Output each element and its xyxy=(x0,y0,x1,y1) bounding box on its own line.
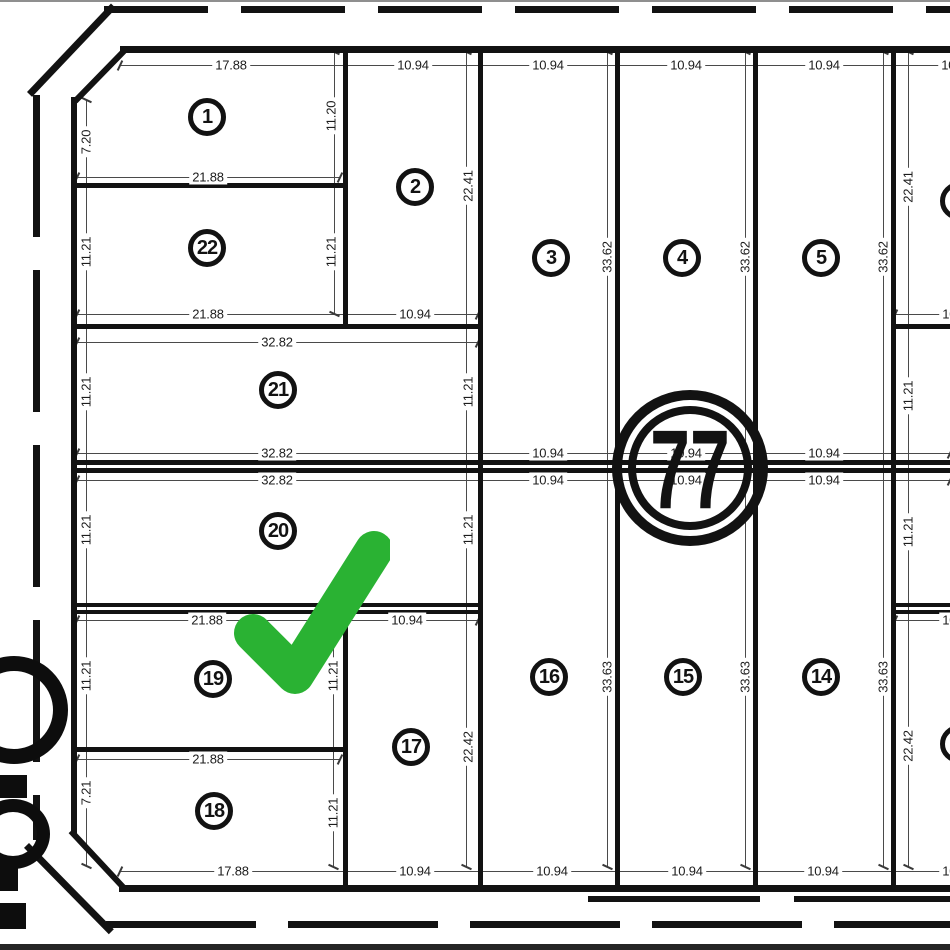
lot-number-circle[interactable]: 15 xyxy=(664,658,702,696)
street-edge-bottom-right xyxy=(588,896,950,902)
lot-number-circle[interactable]: 3 xyxy=(532,239,570,277)
dimension-label: 10.94 xyxy=(805,473,843,488)
dimension-label: 10.94 xyxy=(804,864,842,879)
lot-number-circle[interactable]: 5 xyxy=(802,239,840,277)
dimension-label: 11.21 xyxy=(79,512,94,549)
top-hairline xyxy=(0,0,950,2)
lot-number-circle[interactable]: 16 xyxy=(530,658,568,696)
lot-line-center-north xyxy=(72,460,950,465)
dimension-label: 22.42 xyxy=(461,728,476,766)
lot-number-circle-partial xyxy=(940,725,950,763)
dimension-label: 11.21 xyxy=(461,512,476,549)
block-number-seal: 77 xyxy=(610,388,770,548)
dimension-label: 10.94 xyxy=(529,58,567,73)
street-name-letter-fragment-o xyxy=(0,656,68,764)
dimension-label: 10.94 xyxy=(396,307,434,322)
dimension-label: 7.21 xyxy=(79,778,94,809)
dimension-label: 10.94 xyxy=(667,58,705,73)
dimension-label: 10.94 xyxy=(529,473,567,488)
dimension-label: 10.94 xyxy=(668,864,706,879)
dimension-label: 33.63 xyxy=(600,658,615,696)
dimension-label: 11.21 xyxy=(901,378,916,415)
dimension-label: 10.94 xyxy=(938,58,950,73)
dimension-label: 10.94 xyxy=(388,613,426,628)
dimension-label: 17.88 xyxy=(214,864,252,879)
dimension-label: 11.21 xyxy=(79,374,94,411)
lot-line xyxy=(891,603,950,607)
dimension-label: 22.42 xyxy=(901,727,916,765)
dimension-label: 33.62 xyxy=(876,238,891,276)
dimension-label: 33.62 xyxy=(600,238,615,276)
dimension-label: 11.21 xyxy=(326,795,341,832)
dimension-label: 10.94 xyxy=(529,446,567,461)
lot-line xyxy=(891,324,950,329)
dimension-label: 11.20 xyxy=(324,98,339,135)
lot-number-circle[interactable]: 21 xyxy=(259,371,297,409)
lot-number-circle[interactable]: 17 xyxy=(392,728,430,766)
block-chamfer-top-left xyxy=(73,46,129,103)
block-chamfer-bottom-left xyxy=(69,829,127,891)
lot-number-circle[interactable]: 14 xyxy=(802,658,840,696)
dimension-label: 10.94 xyxy=(394,58,432,73)
dimension-label: 33.63 xyxy=(876,658,891,696)
street-centerline-bottom xyxy=(106,921,950,928)
block-boundary-bottom xyxy=(119,885,950,892)
lot-line xyxy=(72,324,482,329)
block-boundary-left xyxy=(71,97,77,834)
block-number-text: 77 xyxy=(650,407,730,532)
plat-drawing-page: { "drawing": { "block_label": "77", "lot… xyxy=(0,0,950,950)
street-name-letter-fragment xyxy=(0,775,27,798)
dimension-label: 32.82 xyxy=(258,335,296,350)
dimension-label: 7.20 xyxy=(79,127,94,158)
street-name-letter-fragment xyxy=(0,903,26,929)
dimension-label: 11.21 xyxy=(79,234,94,271)
dimension-label: 10.94 xyxy=(805,58,843,73)
dimension-label: 33.63 xyxy=(738,658,753,696)
street-line-top-left-diagonal xyxy=(27,4,116,97)
lot-number-circle[interactable]: 1 xyxy=(188,98,226,136)
checkmark-annotation xyxy=(225,525,390,700)
dimension-label: 11.21 xyxy=(324,234,339,271)
lot-number-circle[interactable]: 22 xyxy=(188,229,226,267)
street-centerline-top xyxy=(104,6,950,13)
lot-line xyxy=(343,48,348,328)
dimension-label: 21.88 xyxy=(188,613,226,628)
dimension-label: 10.94 xyxy=(396,864,434,879)
dimension-label: 10.94 xyxy=(939,613,950,628)
dimension-label: 11.21 xyxy=(79,658,94,695)
dimension-label: 21.88 xyxy=(189,307,227,322)
dimension-label: 33.62 xyxy=(738,238,753,276)
dimension-label: 22.41 xyxy=(461,167,476,205)
lot-number-circle[interactable]: 4 xyxy=(663,239,701,277)
dimension-label: 32.82 xyxy=(258,446,296,461)
dimension-label: 21.88 xyxy=(189,752,227,767)
dimension-label: 11.21 xyxy=(461,374,476,411)
bottom-dark-strip xyxy=(0,944,950,950)
dimension-label: 10.94 xyxy=(939,864,950,879)
lot-number-circle[interactable]: 2 xyxy=(396,168,434,206)
dimension-label: 10.94 xyxy=(533,864,571,879)
dimension-label: 32.82 xyxy=(258,473,296,488)
lot-number-circle-partial xyxy=(940,182,950,220)
dimension-label: 22.41 xyxy=(901,168,916,206)
lot-number-circle[interactable]: 18 xyxy=(195,792,233,830)
dimension-label: 11.21 xyxy=(901,514,916,551)
checkmark-icon xyxy=(253,550,374,675)
dimension-label: 17.88 xyxy=(212,58,250,73)
dimension-label: 21.88 xyxy=(189,170,227,185)
dimension-label: 10.94 xyxy=(939,307,950,322)
block-boundary-top xyxy=(120,46,950,53)
dimension-label: 10.94 xyxy=(805,446,843,461)
street-name-letter-fragment xyxy=(0,866,18,891)
